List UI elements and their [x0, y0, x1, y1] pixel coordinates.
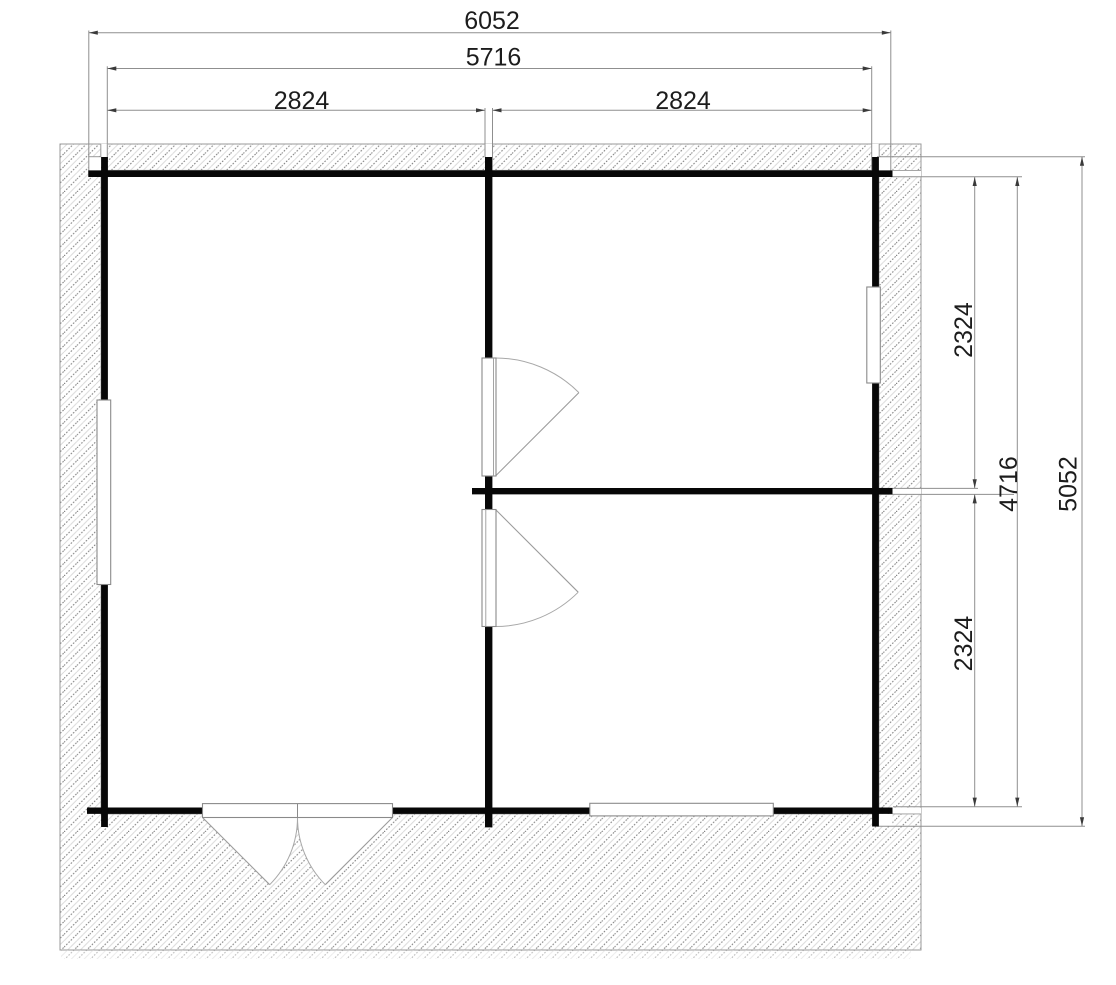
- svg-text:5052: 5052: [1055, 456, 1083, 512]
- svg-text:4716: 4716: [995, 456, 1023, 512]
- svg-text:2324: 2324: [950, 616, 978, 672]
- svg-text:6052: 6052: [464, 7, 520, 35]
- svg-text:5716: 5716: [466, 44, 522, 72]
- svg-text:2824: 2824: [274, 87, 330, 115]
- svg-text:2324: 2324: [950, 302, 978, 358]
- svg-text:2824: 2824: [655, 87, 711, 115]
